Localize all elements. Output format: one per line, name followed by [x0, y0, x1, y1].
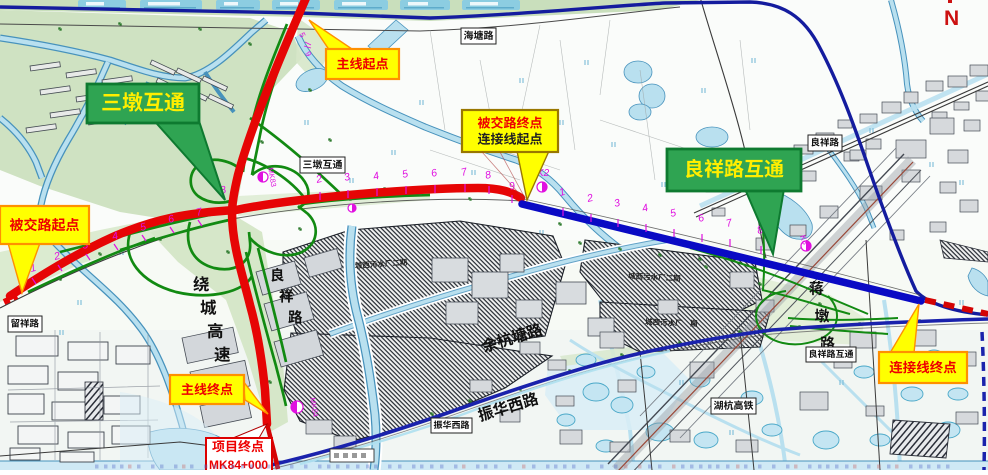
svg-text:N: N [944, 7, 959, 30]
